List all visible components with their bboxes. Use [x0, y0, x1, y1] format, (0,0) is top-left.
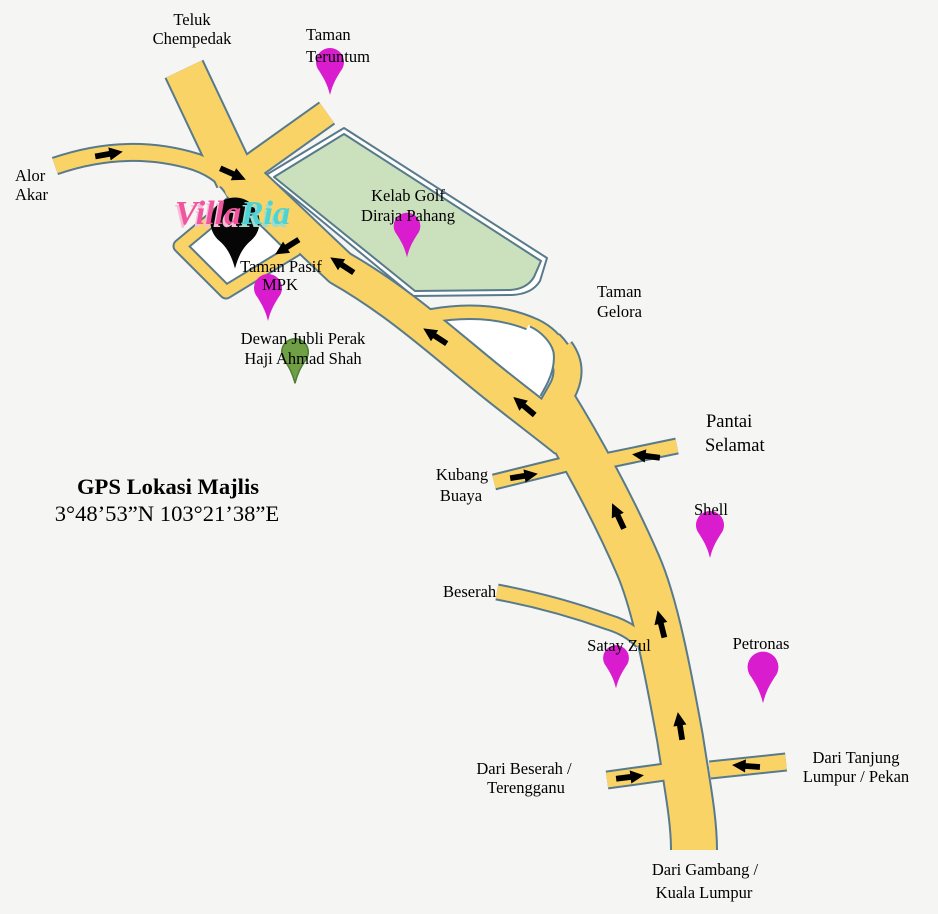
- svg-text:Taman Pasif: Taman Pasif: [240, 257, 322, 276]
- svg-text:Shell: Shell: [694, 500, 728, 519]
- svg-text:Buaya: Buaya: [440, 486, 483, 505]
- svg-text:Akar: Akar: [15, 185, 48, 204]
- svg-text:Kuala Lumpur: Kuala Lumpur: [656, 883, 753, 902]
- svg-text:Chempedak: Chempedak: [153, 29, 233, 48]
- svg-text:Satay Zul: Satay Zul: [587, 636, 651, 655]
- svg-text:Teluk: Teluk: [173, 10, 211, 29]
- svg-text:MPK: MPK: [262, 275, 298, 294]
- svg-text:Alor: Alor: [15, 166, 46, 185]
- svg-text:Gelora: Gelora: [597, 302, 643, 321]
- svg-text:Selamat: Selamat: [705, 436, 765, 456]
- svg-text:Villa: Villa: [175, 195, 241, 232]
- svg-text:Taman: Taman: [597, 282, 642, 301]
- svg-text:Taman: Taman: [306, 25, 351, 44]
- svg-text:GPS Lokasi Majlis: GPS Lokasi Majlis: [77, 474, 259, 499]
- svg-text:Diraja Pahang: Diraja Pahang: [361, 206, 455, 225]
- svg-text:Dewan Jubli Perak: Dewan Jubli Perak: [241, 329, 366, 348]
- svg-text:Dari Tanjung: Dari Tanjung: [813, 748, 900, 767]
- svg-text:Kelab Golf: Kelab Golf: [371, 186, 445, 205]
- svg-text:Terengganu: Terengganu: [487, 778, 565, 797]
- svg-text:Kubang: Kubang: [436, 465, 488, 484]
- svg-text:Lumpur / Pekan: Lumpur / Pekan: [803, 767, 909, 786]
- svg-text:Teruntum: Teruntum: [306, 47, 370, 66]
- svg-text:3°48’53”N 103°21’38”E: 3°48’53”N 103°21’38”E: [55, 501, 280, 526]
- svg-text:Dari Gambang /: Dari Gambang /: [652, 860, 759, 879]
- svg-text:Ria: Ria: [240, 195, 290, 232]
- svg-text:Pantai: Pantai: [706, 412, 752, 432]
- svg-text:Petronas: Petronas: [733, 634, 790, 653]
- svg-text:Haji Ahmad Shah: Haji Ahmad Shah: [244, 349, 362, 368]
- svg-text:Beserah: Beserah: [443, 582, 497, 601]
- svg-text:Dari Beserah /: Dari Beserah /: [476, 759, 572, 778]
